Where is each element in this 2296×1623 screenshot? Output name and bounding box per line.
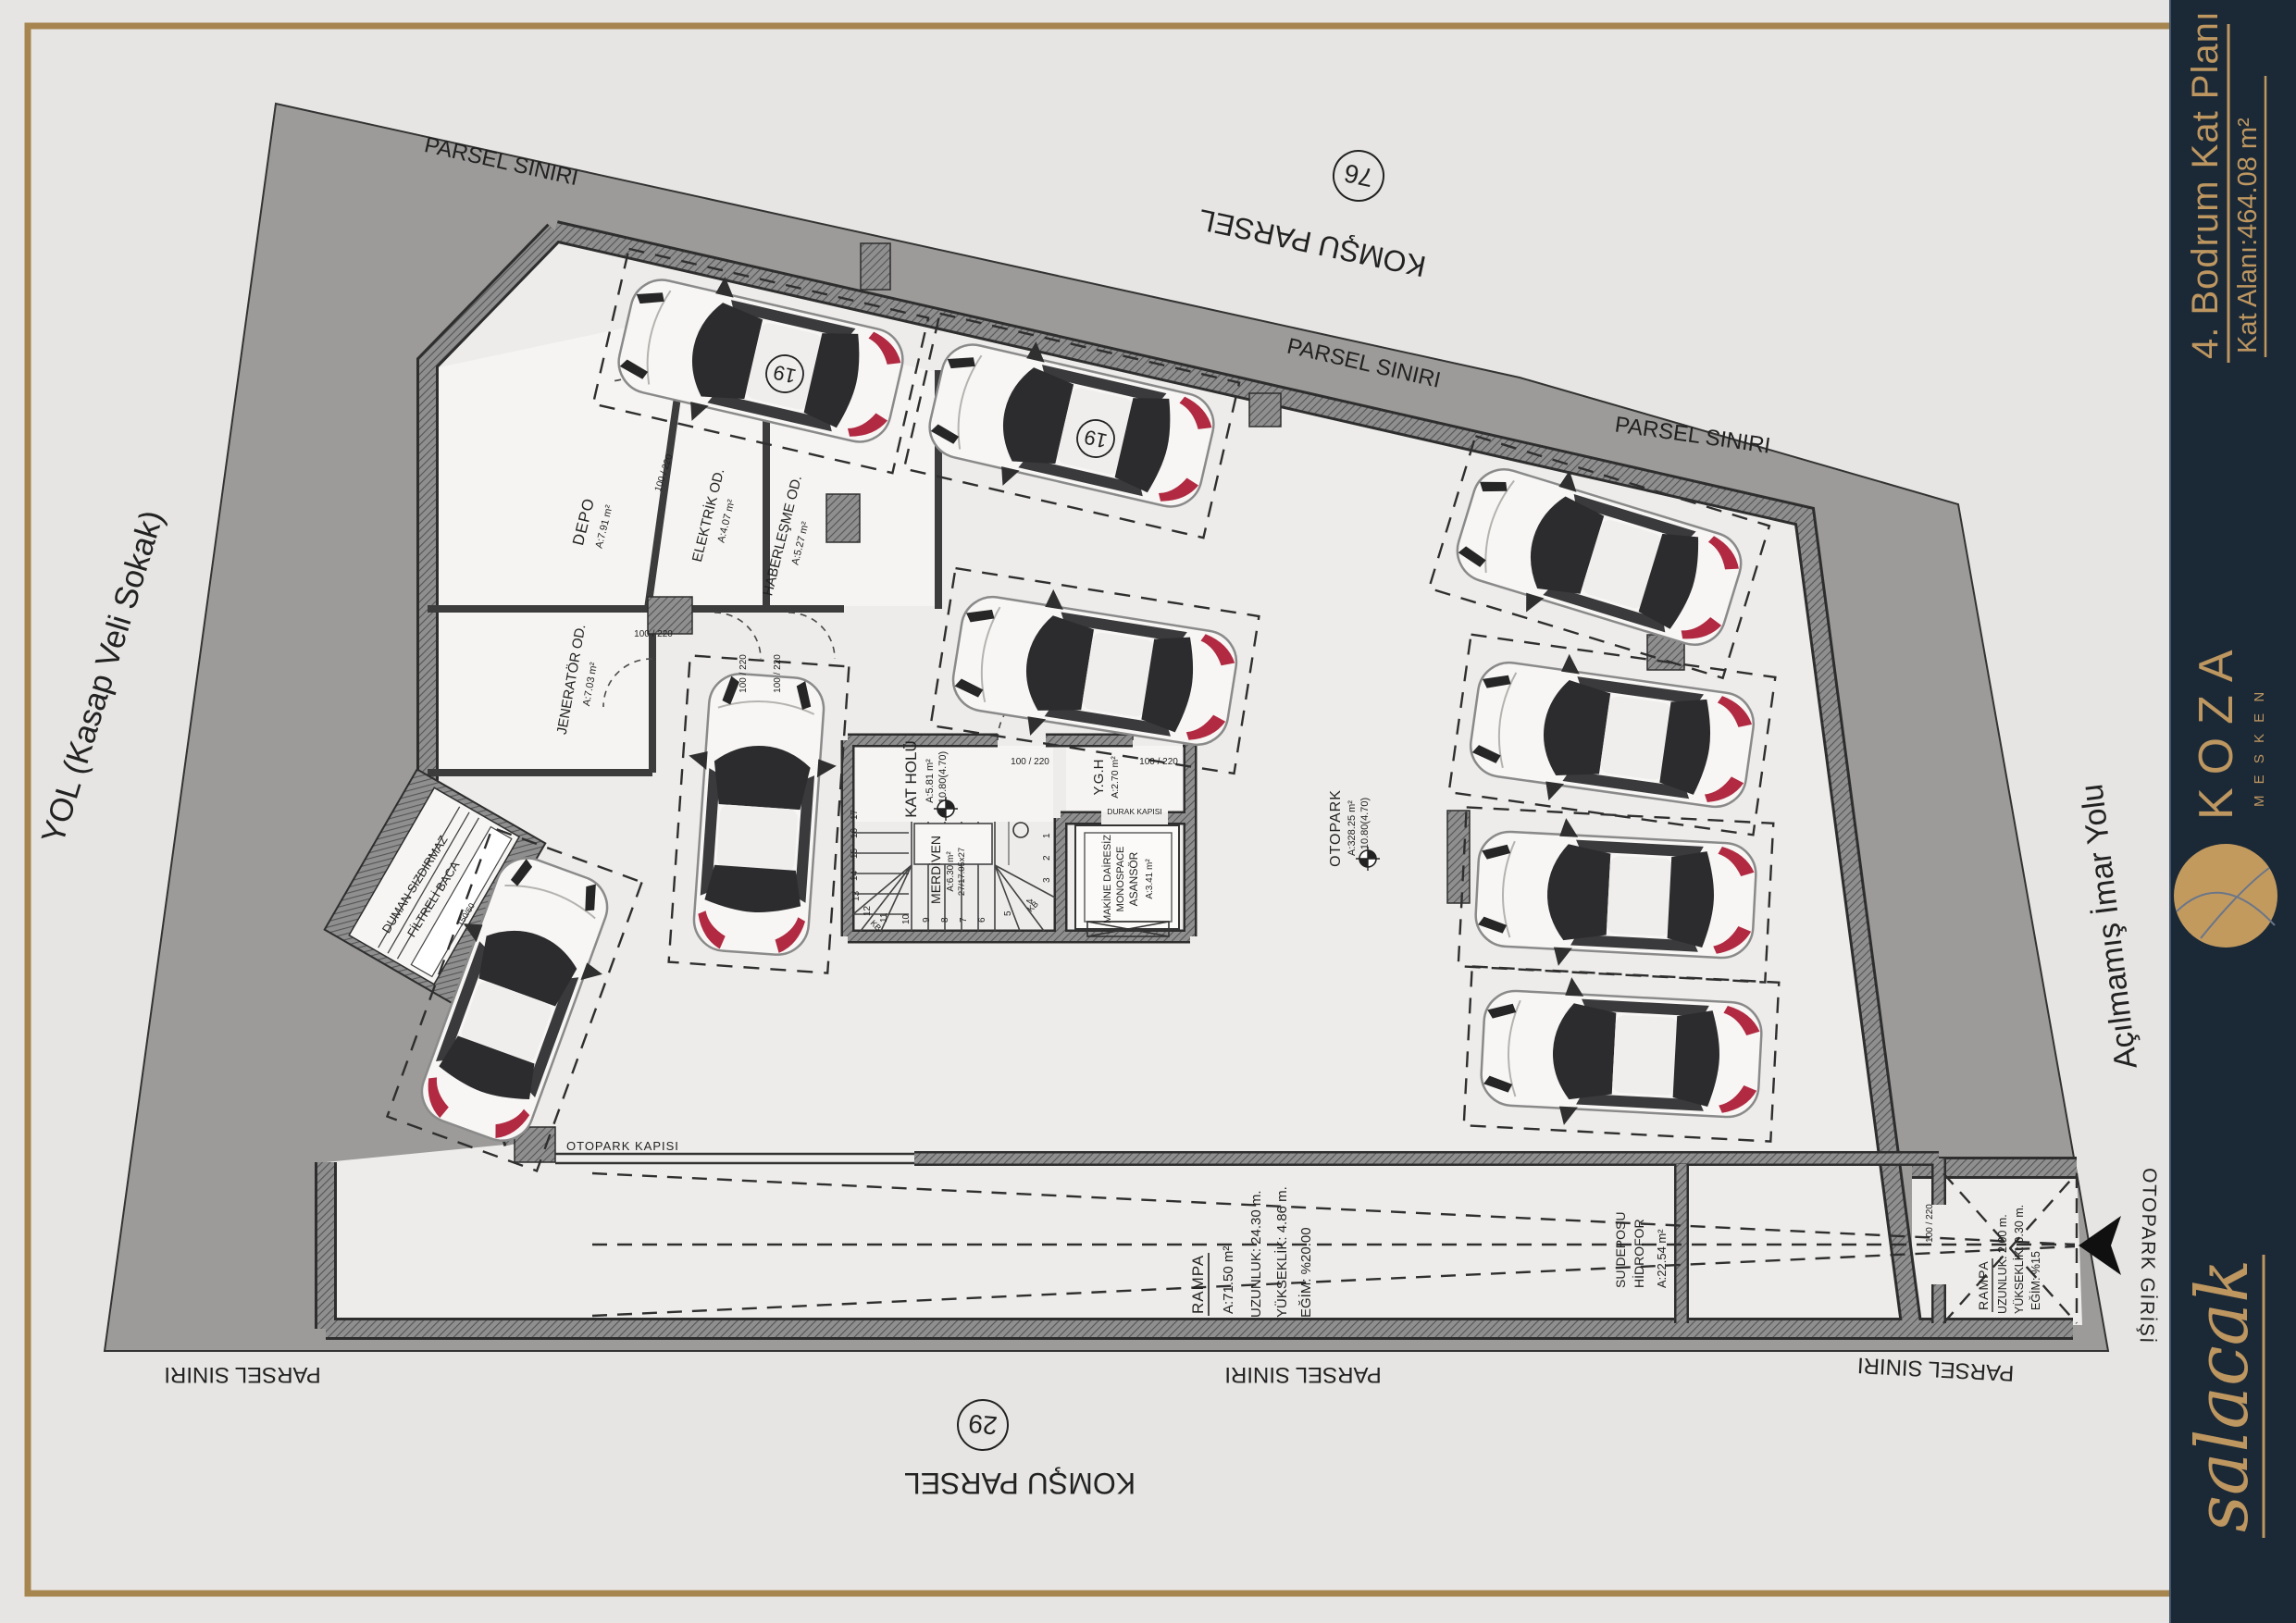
room-merdiven-area: A:6.30 m² (946, 851, 956, 892)
parcel-boundary-label: PARSEL SINIRI (1224, 1362, 1381, 1387)
garage-door-label: OTOPARK KAPISI (566, 1139, 679, 1153)
su-deposu-line1: SU DEPOSU (1613, 1212, 1628, 1288)
title-sidebar: 4. Bodrum Kat Planı Kat Alanı:464.08 m² … (2170, 0, 2296, 1623)
svg-text:17: 17 (850, 809, 860, 820)
room-otopark-area: A:328.25 m² (1347, 800, 1358, 856)
svg-text:3: 3 (1042, 877, 1052, 883)
parcel-number: 76 (1342, 158, 1376, 192)
elevator-door-label: DURAK KAPISI (1107, 807, 1162, 816)
brand-logo-icon (2174, 844, 2277, 948)
svg-text:7: 7 (959, 917, 969, 923)
neighbor-parcel-bottom: KOMŞU PARSEL (904, 1467, 1136, 1500)
svg-text:12: 12 (863, 905, 873, 916)
sheet-subtitle: Kat Alanı:464.08 m² (2233, 118, 2263, 353)
svg-text:16: 16 (850, 827, 860, 838)
ramp-slope: EĞİM: %20.00 (1297, 1227, 1314, 1318)
door-size: 100 / 220 (634, 629, 673, 639)
door-size: 100 / 220 (1011, 757, 1049, 767)
svg-text:6: 6 (977, 917, 987, 923)
svg-text:15: 15 (850, 848, 860, 859)
floor-plan-sheet: 19 19 DEPO A:7.91 m² ELEKTRİK OD. A:4.07… (0, 0, 2296, 1623)
room-katholu-area: A:5.81 m² (925, 759, 936, 803)
parcel-number: 29 (967, 1409, 999, 1441)
elevator-line2: MONOSPACE (1115, 847, 1126, 912)
svg-text:8: 8 (940, 917, 950, 923)
elevator-area: A:3.41 m² (1145, 859, 1155, 899)
ramp-entry-length: UZUNLUK: 2.00 m. (1996, 1214, 2009, 1314)
room-merdiven: MERDİVEN (927, 836, 943, 904)
brand-logo-subtext: M E S K E N (2252, 688, 2267, 807)
svg-text:11: 11 (879, 912, 889, 923)
signature-text: salacak (2181, 1259, 2265, 1532)
svg-text:1: 1 (1042, 833, 1052, 838)
room-otopark: OTOPARK (1328, 789, 1344, 867)
su-deposu-line2: HİDROFOR (1631, 1219, 1646, 1288)
parcel-boundary-label: PARSEL SINIRI (164, 1362, 320, 1387)
entrance-label: OTOPARK GİRİŞİ (2136, 1168, 2160, 1344)
room-ygh: Y.G.H (1091, 760, 1107, 796)
svg-text:2: 2 (1042, 855, 1052, 861)
svg-text:5: 5 (1003, 911, 1013, 916)
floor-plan-drawing: 19 19 DEPO A:7.91 m² ELEKTRİK OD. A:4.07… (0, 0, 2296, 1623)
room-katholu: KAT HOLÜ (902, 740, 920, 817)
svg-text:10: 10 (901, 913, 912, 924)
su-deposu-area: A:22.54 m² (1655, 1229, 1669, 1288)
door-size: 100 / 220 (1139, 757, 1178, 767)
svg-text:9: 9 (922, 917, 932, 923)
svg-text:14: 14 (850, 870, 860, 881)
ramp-entry-slope: EĞİM: %15 (2029, 1251, 2042, 1310)
ramp-area: A:71.50 m² (1221, 1246, 1236, 1314)
door-size: 100 / 220 (1925, 1204, 1935, 1243)
ramp-title: RAMPA (1189, 1255, 1207, 1314)
ramp-entry-height: YÜKSEKLİK: 0.30 m. (2013, 1205, 2026, 1314)
room-otopark-level: 10.80(4.70) (1359, 798, 1371, 849)
ramp-length: UZUNLUK: 24.30 m. (1248, 1190, 1264, 1318)
elevator-line1: MAKİNE DAİRESİZ (1101, 835, 1113, 923)
door-size: 100 / 220 (773, 654, 783, 693)
room-ygh-area: A:2.70 m² (1110, 756, 1121, 799)
ramp-entry-title: RAMPA (1976, 1260, 1991, 1310)
elevator-line3: ASANSÖR (1127, 851, 1140, 906)
sheet-title: 4. Bodrum Kat Planı (2185, 10, 2226, 359)
room-katholu-level: 10.80(4.70) (937, 751, 949, 803)
svg-text:13: 13 (851, 890, 862, 901)
ramp-height: YÜKSEKLİK: 4.86 m. (1273, 1186, 1290, 1318)
room-merdiven-detail: 27/17.05x27 (957, 848, 967, 896)
door-size: 100 / 220 (738, 654, 749, 693)
brand-logo-text: KOZA (2190, 637, 2243, 820)
